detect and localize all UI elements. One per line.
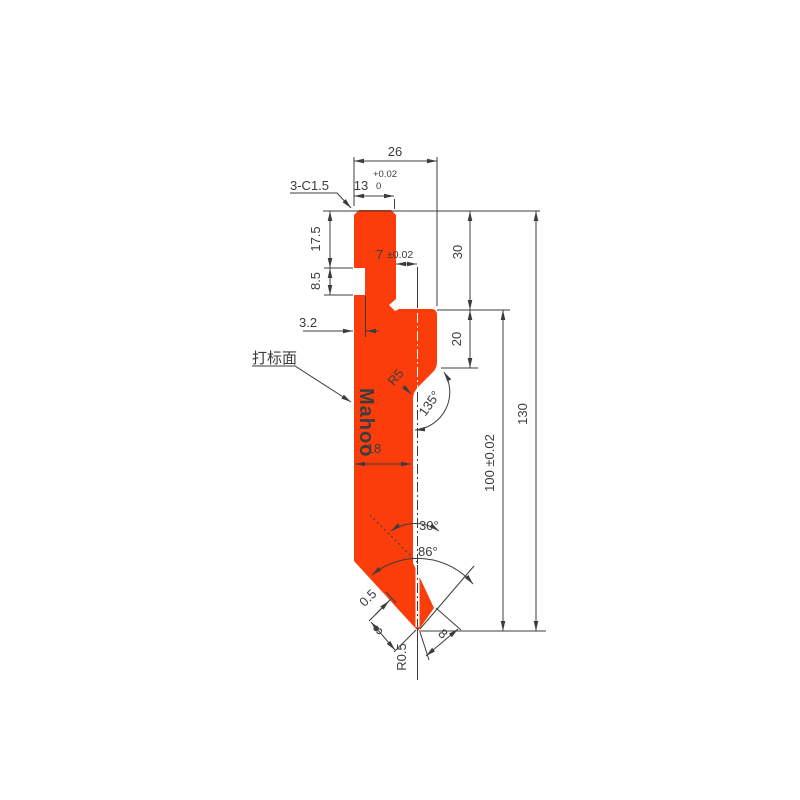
dim-working-height-100: 100 ±0.02 <box>482 310 503 631</box>
dim-notch-height-8-5: 8.5 <box>308 268 330 295</box>
dim-total-height-label: 130 <box>515 403 530 425</box>
tip-angle-label: 86° <box>418 544 438 559</box>
dim-neck-height-20: 20 <box>449 310 470 368</box>
dim-top-width-label: 26 <box>388 144 402 159</box>
punch-drawing-svg: Mahoo 26 13 +0.02 0 3-C1.5 7 <box>0 0 800 800</box>
tip-radius-callout: R0.5 <box>394 643 409 670</box>
marking-face-callout: 打标面 <box>252 350 351 402</box>
marking-face-label: 打标面 <box>252 350 297 367</box>
neck-angle-label: 135° <box>415 388 443 419</box>
dim-shoulder-height-30: 30 <box>450 211 470 310</box>
tip-radius-label: R0.5 <box>394 643 409 670</box>
dim-shank-width-13: 13 +0.02 0 <box>354 169 397 196</box>
technical-drawing-canvas: Mahoo 26 13 +0.02 0 3-C1.5 7 <box>0 0 800 800</box>
dim-notch-depth-label: 3.2 <box>299 315 317 330</box>
chamfer-note-label: 3-C1.5 <box>290 178 329 193</box>
dim-shank-width-tol-upper: +0.02 <box>373 169 397 180</box>
dim-working-height-label: 100 ±0.02 <box>482 434 497 492</box>
dim-top-width-26: 26 <box>354 144 437 161</box>
dim-upper-height-17-5: 17.5 <box>308 211 330 268</box>
dim-center-offset-label: 7 <box>376 247 383 262</box>
dim-neck-height-label: 20 <box>449 332 464 346</box>
dim-right-face-label: 8 <box>435 626 450 642</box>
dim-left-face-label: 8 <box>370 622 386 637</box>
dim-blade-width-label: 18 <box>367 441 381 456</box>
chamfer-callout: 3-C1.5 <box>290 178 351 208</box>
dim-notch-height-label: 8.5 <box>308 272 323 290</box>
dim-upper-height-label: 17.5 <box>308 226 323 251</box>
dim-shank-width-label: 13 <box>354 178 368 193</box>
dim-center-offset-tol: ±0.02 <box>387 249 413 261</box>
dim-center-offset-7: 7 ±0.02 <box>376 247 417 264</box>
bend-angle-label: 30° <box>419 518 439 533</box>
dim-shoulder-height-label: 30 <box>450 245 465 259</box>
dim-shank-width-tol-lower: 0 <box>376 181 381 192</box>
dim-land-label: 0.5 <box>356 586 379 609</box>
dim-total-height-130: 130 <box>515 211 536 631</box>
